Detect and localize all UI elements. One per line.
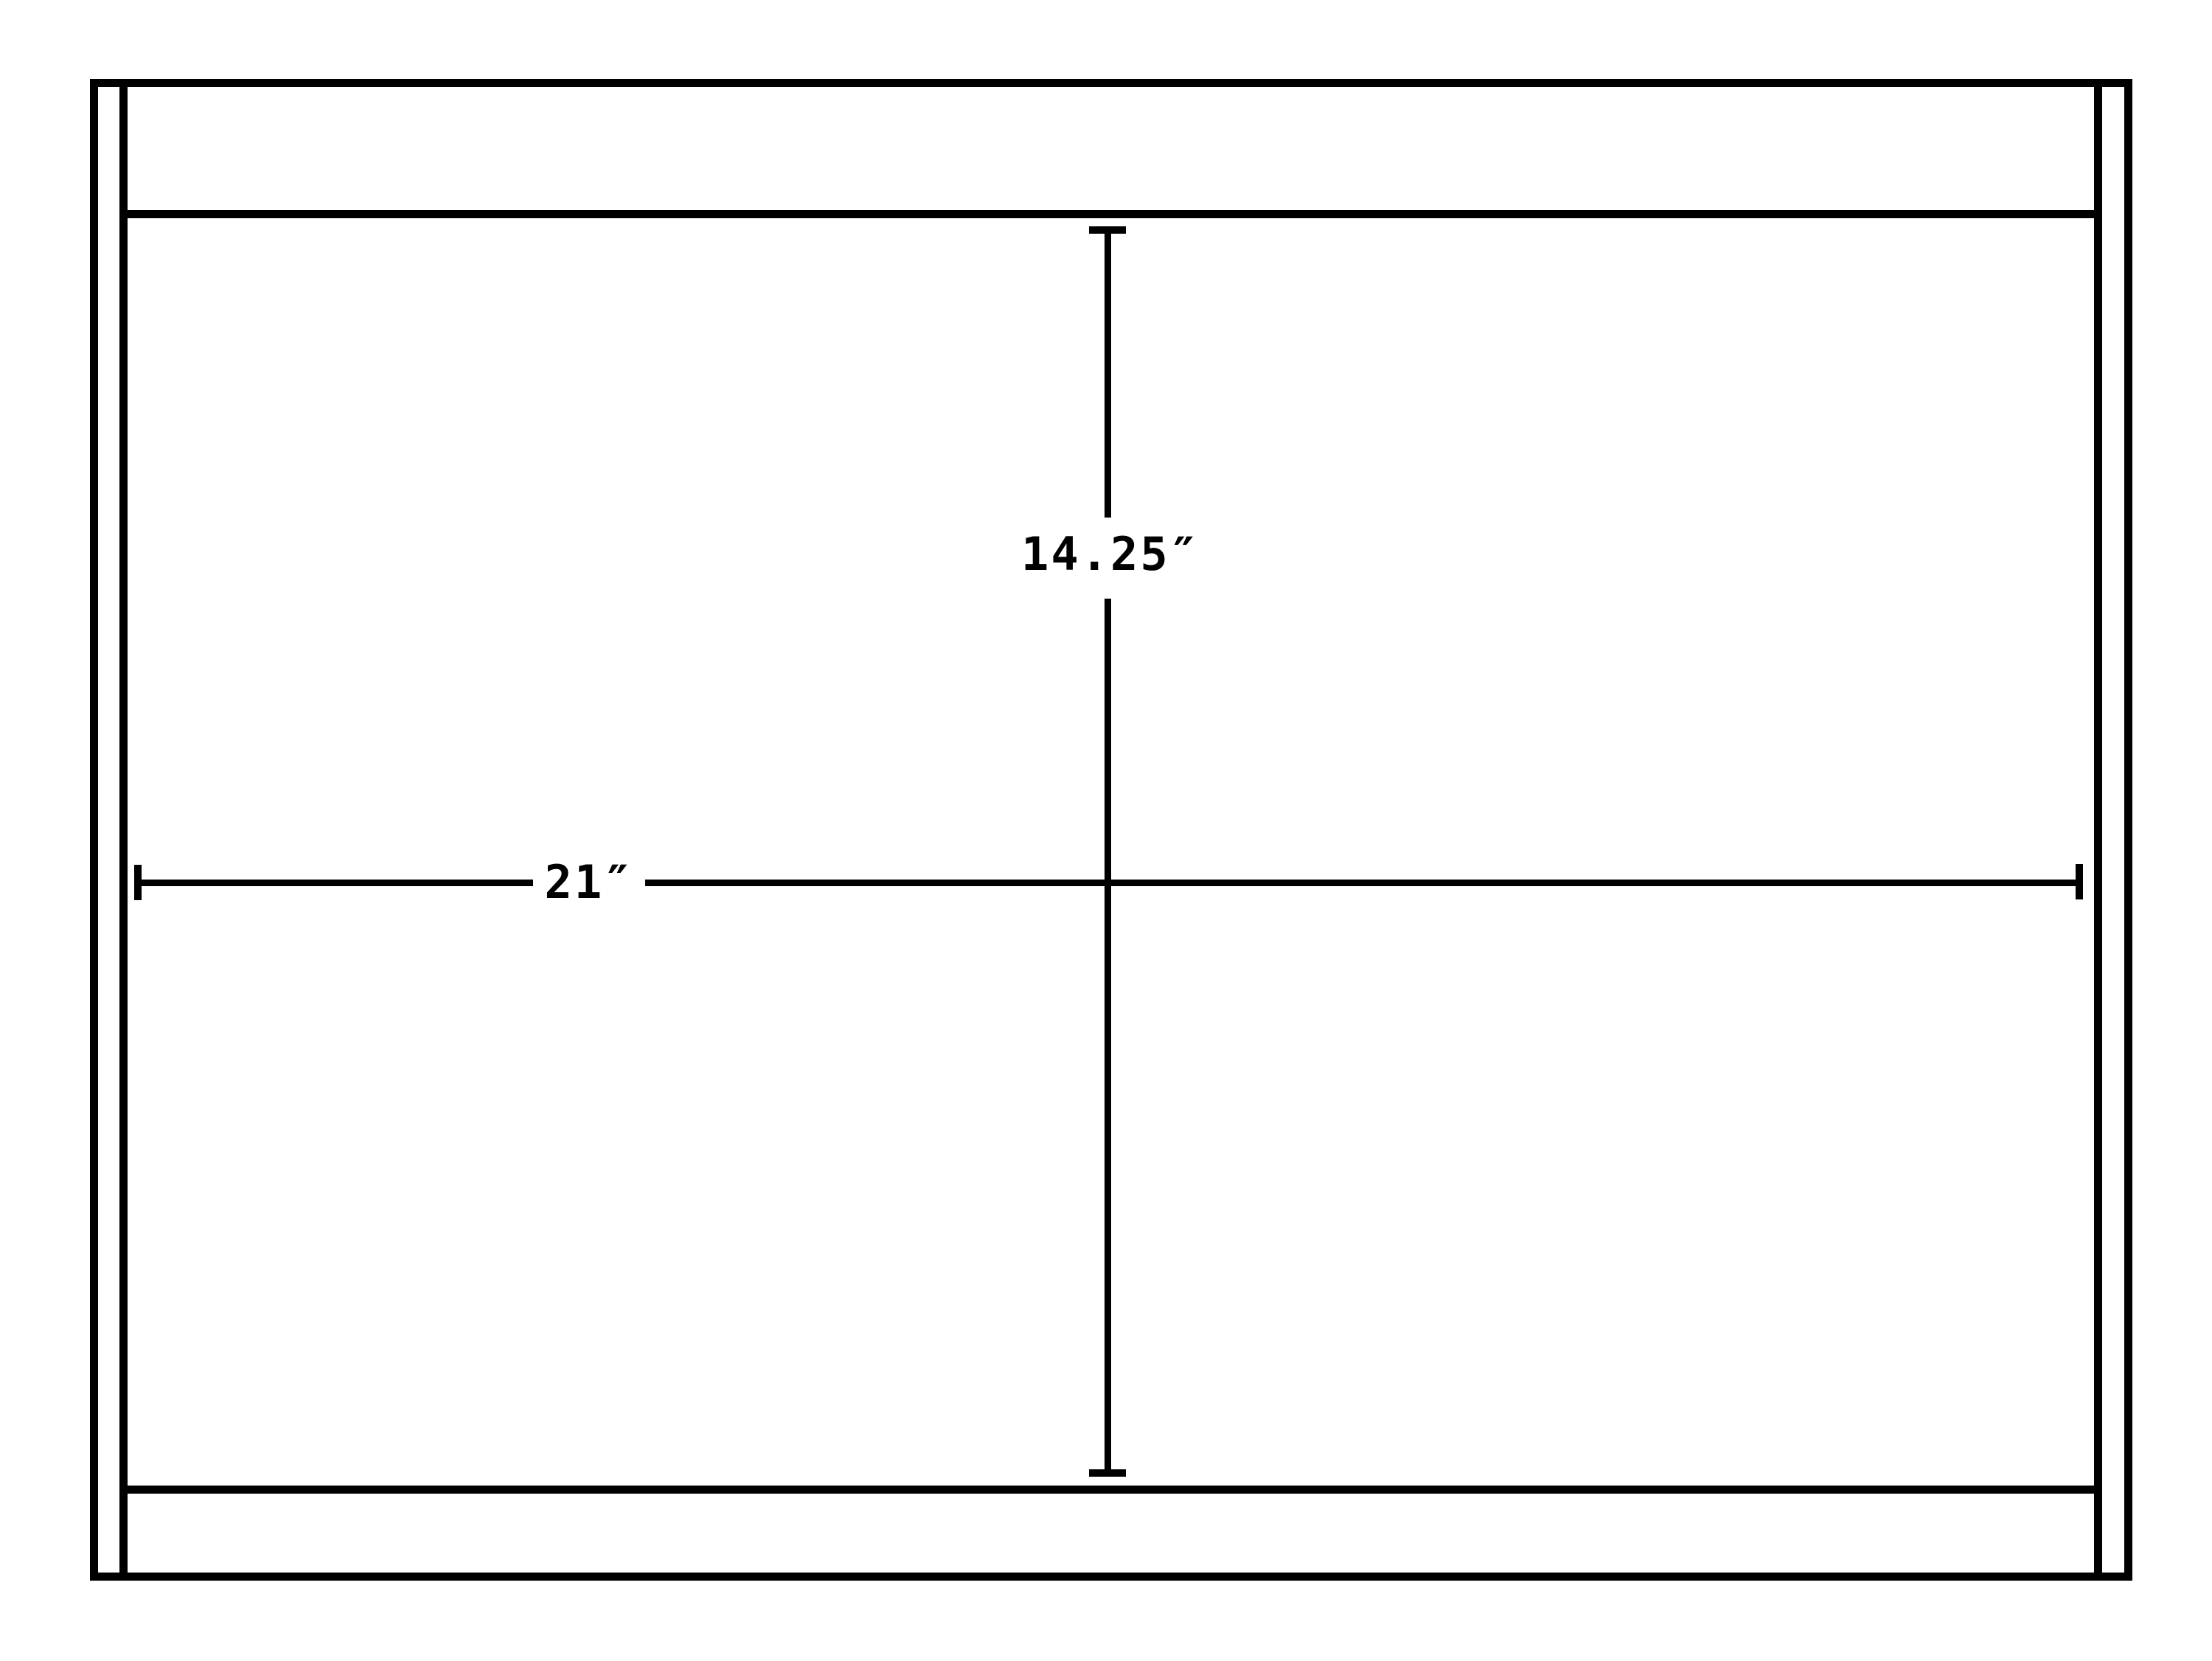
width-dimension-label: 21″ [540, 857, 639, 908]
bottom-rail-line [123, 1486, 2098, 1494]
height-dimension-label: 14.25″ [1017, 529, 1204, 580]
dimension-drawing: 14.25″ 21″ [0, 0, 2212, 1661]
width-dimension-right-tick [2076, 864, 2083, 899]
height-dimension-line-lower [1105, 599, 1111, 1473]
left-stile-line [119, 83, 128, 1578]
outer-frame-outline [90, 79, 2132, 1581]
height-dimension-bottom-tick [1089, 1469, 1126, 1477]
width-dimension-line-right [645, 880, 2079, 886]
width-dimension-line-left [138, 880, 533, 886]
height-dimension-line-upper [1105, 230, 1111, 518]
top-rail-line [123, 210, 2098, 218]
right-stile-line [2094, 83, 2102, 1578]
